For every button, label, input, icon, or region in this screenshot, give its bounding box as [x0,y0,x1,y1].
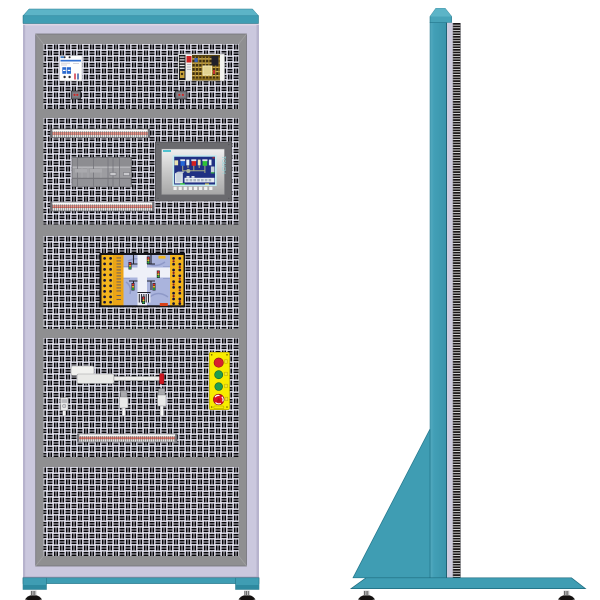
svg-text:TOUCH: TOUCH [220,156,226,174]
